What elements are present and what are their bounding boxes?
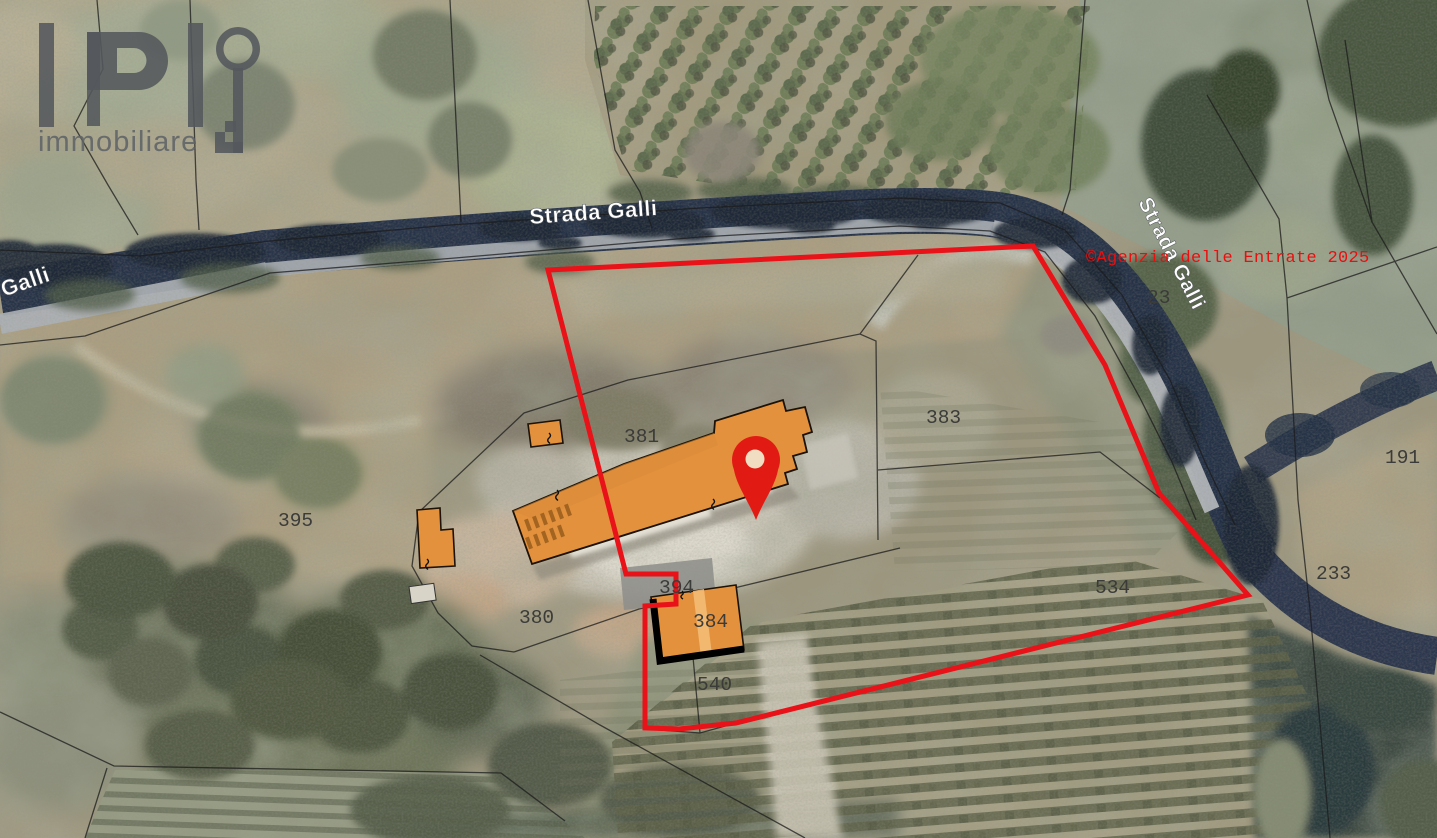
svg-text:381: 381 [624,426,659,448]
svg-text:384: 384 [693,611,728,633]
svg-text:383: 383 [926,407,961,429]
svg-text:©Agenzia delle Entrate 2025: ©Agenzia delle Entrate 2025 [1086,249,1370,268]
svg-text:534: 534 [1095,577,1130,599]
svg-text:394: 394 [659,577,694,599]
svg-text:23: 23 [1147,287,1170,309]
svg-text:540: 540 [697,674,732,696]
svg-text:380: 380 [519,607,554,629]
svg-text:395: 395 [278,510,313,532]
svg-text:immobiliare: immobiliare [38,126,198,158]
svg-text:191: 191 [1385,447,1420,469]
svg-text:233: 233 [1316,563,1351,585]
